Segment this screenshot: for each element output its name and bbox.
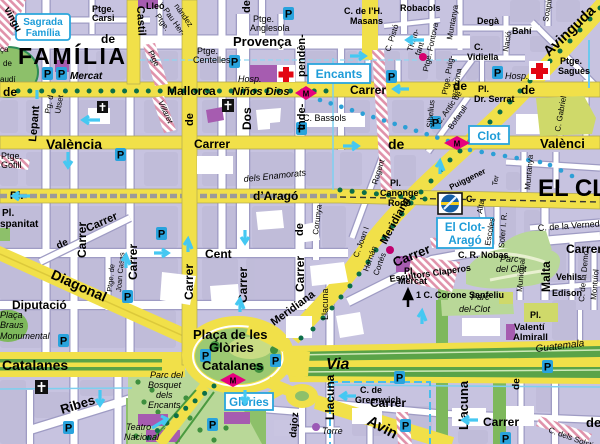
svg-text:Glòries: Glòries <box>209 340 254 355</box>
svg-text:de: de <box>521 83 535 97</box>
svg-text:Hosp.: Hosp. <box>238 74 262 84</box>
svg-text:M: M <box>230 377 237 386</box>
svg-text:Vidiella: Vidiella <box>467 52 499 62</box>
svg-text:P: P <box>231 57 238 69</box>
svg-text:Braus: Braus <box>0 320 24 330</box>
svg-text:spanitat: spanitat <box>0 219 39 230</box>
svg-text:dels: dels <box>156 390 173 400</box>
svg-text:Sagrada: Sagrada <box>23 17 63 28</box>
svg-text:C. Bassols: C. Bassols <box>303 113 347 123</box>
svg-text:P: P <box>117 150 124 162</box>
svg-text:Llacuna: Llacuna <box>320 288 330 320</box>
svg-text:Canonge: Canonge <box>380 188 419 198</box>
svg-text:1 C. Corone Sanfeliu: 1 C. Corone Sanfeliu <box>416 290 504 300</box>
svg-text:P: P <box>285 9 292 21</box>
svg-text:Ter: Ter <box>490 174 501 186</box>
svg-text:Parc del: Parc del <box>150 370 184 380</box>
svg-text:Pl.: Pl. <box>404 266 415 276</box>
svg-text:Encants: Encants <box>148 400 181 410</box>
svg-text:Pl.: Pl. <box>390 178 401 188</box>
svg-text:Hosp.: Hosp. <box>505 71 529 81</box>
svg-text:P: P <box>502 434 509 444</box>
svg-text:Provença: Provença <box>233 34 292 49</box>
svg-text:FAMÍLIA: FAMÍLIA <box>18 42 128 69</box>
svg-text:Pl.: Pl. <box>530 310 541 320</box>
svg-text:Bosquet: Bosquet <box>148 380 182 390</box>
svg-text:Parc: Parc <box>471 292 490 302</box>
svg-text:Nacional: Nacional <box>124 432 160 442</box>
svg-text:P: P <box>209 420 216 432</box>
svg-text:Torre: Torre <box>322 426 343 436</box>
svg-text:C.: C. <box>466 194 475 204</box>
svg-text:Monumental: Monumental <box>0 331 51 341</box>
svg-text:C.: C. <box>474 42 483 52</box>
svg-text:Masans: Masans <box>350 16 383 26</box>
svg-text:Carrer: Carrer <box>293 256 307 292</box>
svg-text:Greenwich: Greenwich <box>355 395 401 405</box>
svg-text:P: P <box>272 356 279 368</box>
svg-text:Malta: Malta <box>539 261 553 292</box>
svg-text:C. de: C. de <box>360 385 382 395</box>
svg-text:Anglesola: Anglesola <box>250 23 290 33</box>
svg-text:Via: Via <box>326 356 350 373</box>
svg-text:dajoz: dajoz <box>288 412 301 438</box>
svg-text:C. de l’H.: C. de l’H. <box>344 6 383 16</box>
svg-text:M: M <box>303 90 310 99</box>
svg-text:P: P <box>494 68 501 80</box>
svg-text:P: P <box>402 421 409 433</box>
svg-text:Bahí: Bahí <box>512 26 532 36</box>
svg-text:Dr. Serrat: Dr. Serrat <box>474 94 515 104</box>
svg-text:P: P <box>544 362 551 374</box>
svg-text:Família: Família <box>26 28 61 39</box>
svg-text:d’Aragó: d’Aragó <box>253 189 298 203</box>
svg-text:Aragó: Aragó <box>448 235 481 247</box>
svg-text:Catalanes: Catalanes <box>202 358 263 373</box>
svg-text:P: P <box>388 72 395 84</box>
svg-text:Teatro: Teatro <box>126 422 151 432</box>
svg-text:Llacuna: Llacuna <box>323 374 337 420</box>
svg-text:Robacols: Robacols <box>400 3 441 13</box>
svg-text:de: de <box>388 136 405 152</box>
svg-text:Cent: Cent <box>205 247 232 261</box>
svg-text:de: de <box>3 59 12 68</box>
svg-text:Carrer: Carrer <box>236 267 250 303</box>
svg-text:pendèn-: pendèn- <box>296 34 308 77</box>
svg-text:de: de <box>241 0 253 13</box>
svg-text:Mercat: Mercat <box>70 71 103 82</box>
svg-text:Carrer: Carrer <box>194 137 230 151</box>
svg-text:Centelles: Centelles <box>193 55 231 65</box>
svg-text:P: P <box>158 229 165 241</box>
svg-text:C. R. Nobas: C. R. Nobas <box>458 250 509 260</box>
svg-text:Carrer: Carrer <box>182 264 196 300</box>
svg-text:Valènci: Valènci <box>540 136 585 151</box>
svg-text:Carrer: Carrer <box>350 83 386 97</box>
svg-text:de: de <box>184 113 196 126</box>
svg-text:València: València <box>46 136 102 152</box>
svg-text:Carrer: Carrer <box>483 415 519 429</box>
svg-text:del-Clot: del-Clot <box>459 304 491 314</box>
svg-text:de: de <box>586 415 600 430</box>
svg-text:Saguès: Saguès <box>558 66 590 76</box>
svg-text:P: P <box>44 69 51 81</box>
svg-text:de: de <box>101 32 115 46</box>
svg-text:Clot: Clot <box>477 129 500 143</box>
svg-text:Niños Dios: Niños Dios <box>232 86 289 98</box>
svg-text:Pl.: Pl. <box>2 208 14 219</box>
svg-text:P: P <box>396 373 403 385</box>
svg-text:Gofill: Gofill <box>1 160 22 170</box>
svg-text:Mercat: Mercat <box>398 276 427 286</box>
svg-text:P: P <box>58 69 65 81</box>
svg-text:P: P <box>60 336 67 348</box>
svg-text:ça: ça <box>0 45 9 54</box>
svg-text:de: de <box>294 223 306 236</box>
svg-text:de: de <box>511 378 522 390</box>
svg-text:Plaça: Plaça <box>0 310 23 320</box>
svg-text:Encants: Encants <box>316 67 363 81</box>
svg-text:Ptge.: Ptge. <box>560 56 582 66</box>
svg-text:audí: audí <box>0 75 16 84</box>
svg-text:Rodó: Rodó <box>388 198 411 208</box>
svg-text:P: P <box>65 423 72 435</box>
svg-text:Catalanes: Catalanes <box>2 357 68 373</box>
svg-text:Carsi: Carsi <box>92 13 115 23</box>
svg-text:Pl.: Pl. <box>478 84 489 94</box>
svg-text:Almirall: Almirall <box>513 332 548 343</box>
svg-text:EL CL: EL CL <box>538 175 600 202</box>
svg-text:El Clot-: El Clot- <box>445 222 485 234</box>
svg-text:Dos: Dos <box>240 107 254 130</box>
svg-text:Montuïol: Montuïol <box>589 269 600 301</box>
svg-text:M: M <box>454 140 461 149</box>
svg-text:de: de <box>3 85 17 99</box>
svg-text:Mallorca: Mallorca <box>167 84 216 98</box>
svg-text:Degà: Degà <box>477 16 500 26</box>
svg-text:P: P <box>124 292 131 304</box>
